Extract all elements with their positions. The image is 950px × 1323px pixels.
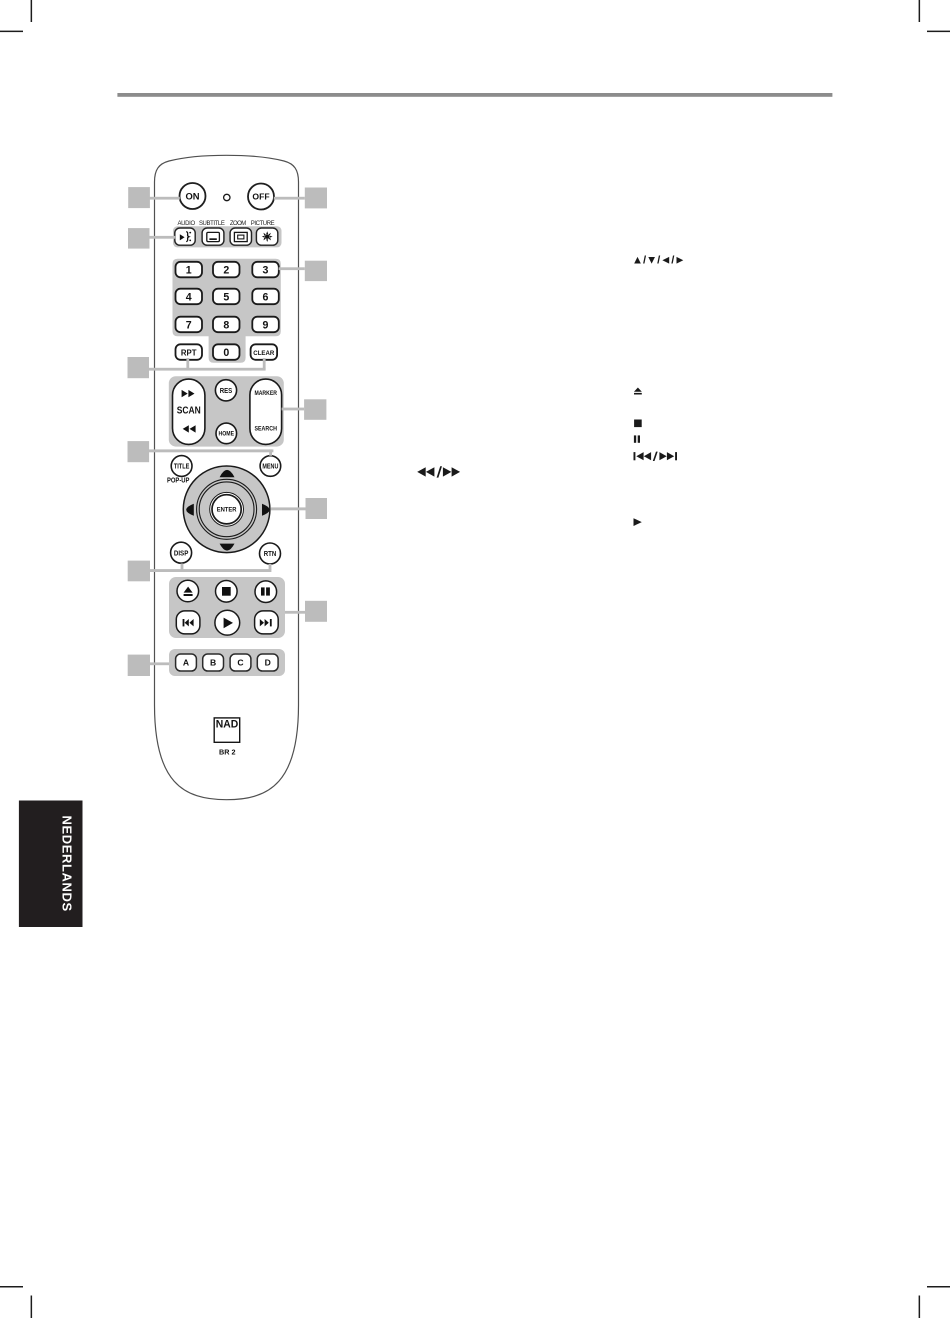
svg-text:PICTURE: PICTURE (251, 221, 275, 227)
svg-text:SEARCH: SEARCH (254, 426, 277, 433)
svg-text:9: 9 (263, 320, 269, 332)
svg-text:SCAN: SCAN (177, 406, 201, 417)
svg-text:BR 2: BR 2 (219, 747, 236, 756)
svg-text:ZOOM: ZOOM (230, 221, 246, 227)
svg-text:▲/▼/◄/►: ▲/▼/◄/► (632, 255, 686, 267)
svg-text:RPT: RPT (181, 348, 197, 357)
svg-text:DISP: DISP (174, 550, 189, 557)
svg-text:8: 8 (223, 320, 229, 332)
svg-text:0: 0 (223, 347, 229, 359)
svg-text:4: 4 (186, 292, 192, 304)
svg-text:TITLE: TITLE (174, 464, 190, 471)
svg-text:RES: RES (220, 388, 233, 395)
svg-text:HOME: HOME (219, 431, 235, 438)
svg-text:ENTER: ENTER (217, 507, 237, 514)
svg-text:NEDERLANDS: NEDERLANDS (60, 815, 75, 911)
svg-text:ON: ON (185, 190, 199, 201)
svg-text:OFF: OFF (252, 192, 269, 202)
svg-text:2: 2 (223, 265, 229, 277)
svg-text:MENU: MENU (262, 464, 278, 471)
svg-text:1: 1 (186, 265, 192, 277)
svg-text:RTN: RTN (264, 551, 277, 558)
svg-text:6: 6 (263, 292, 269, 304)
svg-text:5: 5 (223, 292, 229, 304)
svg-text:C: C (237, 658, 243, 668)
svg-text:D: D (265, 658, 271, 668)
svg-text:AUDIO: AUDIO (177, 221, 195, 227)
svg-text:B: B (210, 658, 216, 668)
svg-text:3: 3 (263, 265, 269, 277)
svg-text:SUBTITLE: SUBTITLE (199, 221, 225, 227)
svg-text:NAD: NAD (216, 719, 239, 731)
svg-text:MARKER: MARKER (254, 390, 277, 397)
svg-text:A: A (183, 658, 189, 668)
svg-text:CLEAR: CLEAR (253, 350, 274, 357)
svg-text:7: 7 (186, 320, 192, 332)
svg-text:POP-UP: POP-UP (167, 478, 190, 485)
